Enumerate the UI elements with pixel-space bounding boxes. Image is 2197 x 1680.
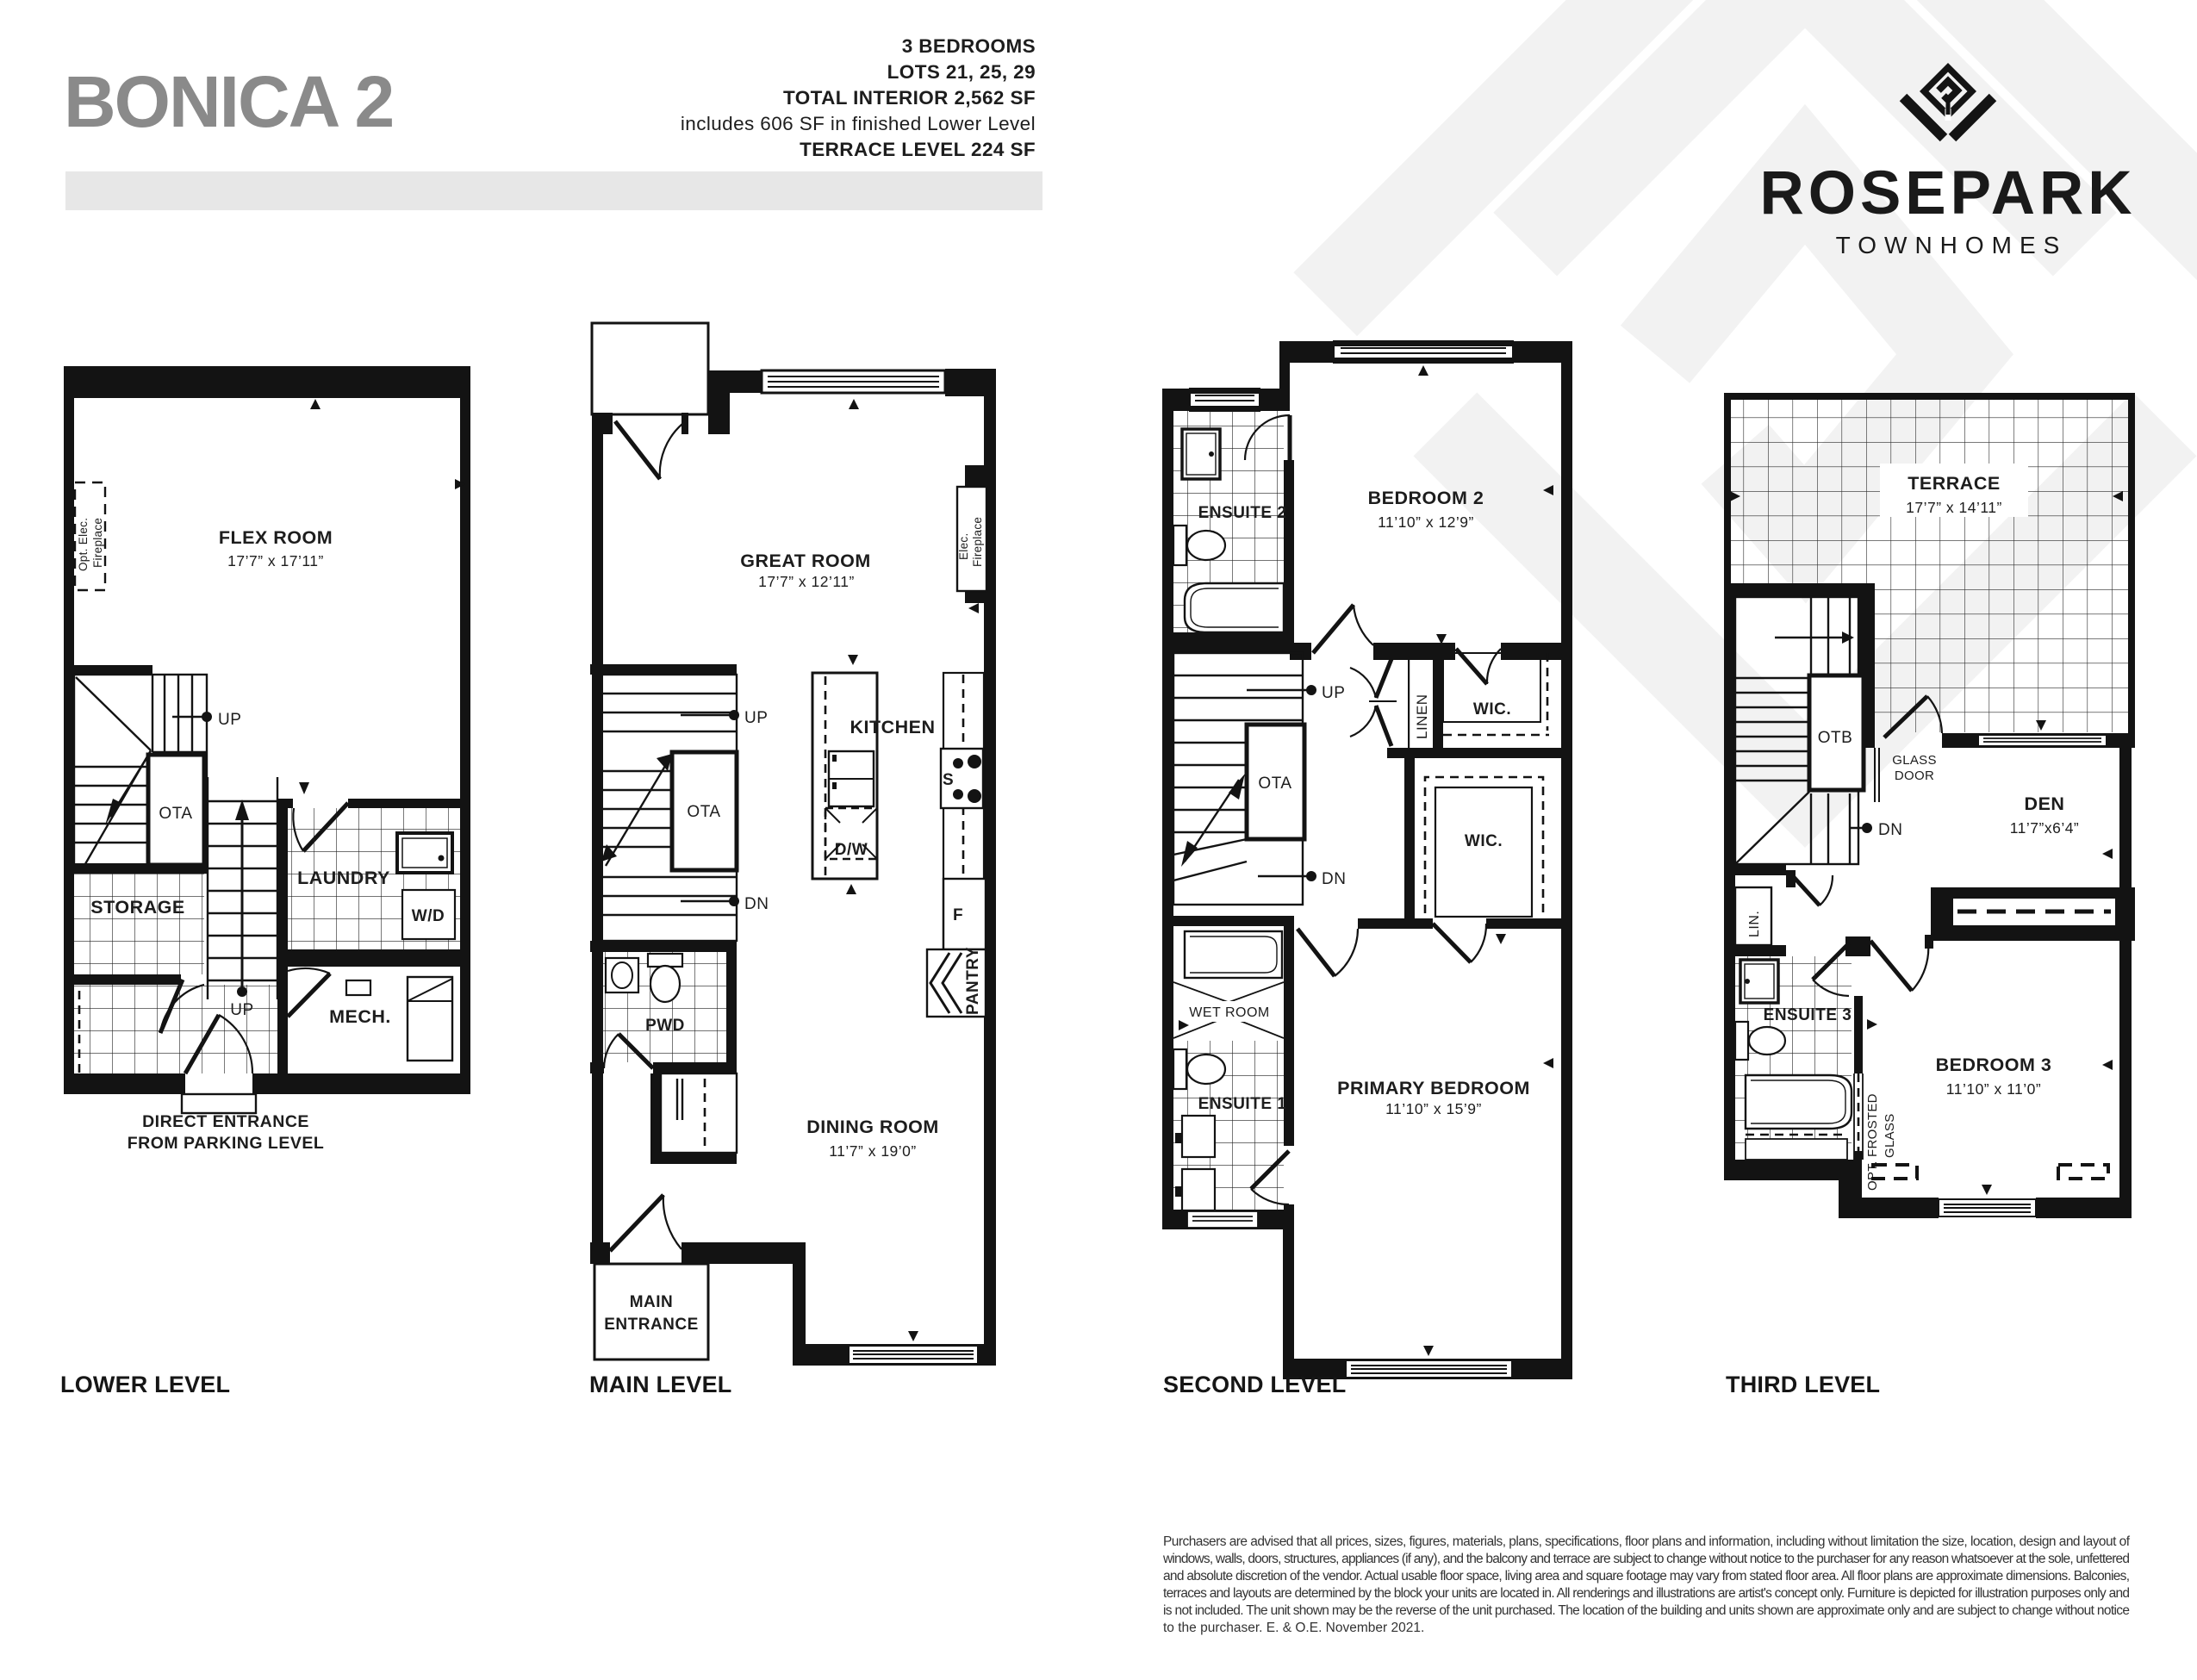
svg-text:ENSUITE 1: ENSUITE 1: [1198, 1095, 1287, 1113]
svg-text:SECOND LEVEL: SECOND LEVEL: [1163, 1372, 1346, 1397]
svg-text:17’7” x 14’11”: 17’7” x 14’11”: [1906, 499, 2002, 516]
svg-text:THIRD LEVEL: THIRD LEVEL: [1726, 1372, 1880, 1397]
svg-text:D/W: D/W: [835, 841, 868, 859]
svg-text:ROSEPARK: ROSEPARK: [1759, 159, 2136, 227]
svg-text:KITCHEN: KITCHEN: [850, 717, 935, 737]
svg-text:TERRACE LEVEL 224 SF: TERRACE LEVEL 224 SF: [800, 139, 1036, 160]
svg-text:Elec.: Elec.: [957, 532, 970, 560]
svg-text:MAIN: MAIN: [630, 1293, 674, 1311]
svg-text:OTA: OTA: [159, 805, 192, 823]
svg-text:11’10” x 11’0”: 11’10” x 11’0”: [1946, 1080, 2041, 1098]
svg-text:DN: DN: [1878, 821, 1902, 839]
svg-text:terraces and layouts are deter: terraces and layouts are determined by t…: [1163, 1586, 2130, 1601]
svg-text:GLASS: GLASS: [1883, 1113, 1897, 1158]
svg-text:WIC.: WIC.: [1465, 832, 1503, 850]
svg-text:windows, walls, doors, structu: windows, walls, doors, structures, appli…: [1162, 1552, 2130, 1566]
svg-text:LINEN: LINEN: [1414, 694, 1430, 739]
svg-text:BONICA 2: BONICA 2: [64, 61, 393, 142]
svg-text:11’10” x 15’9”: 11’10” x 15’9”: [1385, 1100, 1482, 1117]
svg-text:PRIMARY BEDROOM: PRIMARY BEDROOM: [1337, 1078, 1530, 1098]
svg-text:17’7” x 12’11”: 17’7” x 12’11”: [758, 573, 855, 590]
svg-text:W/D: W/D: [412, 907, 445, 925]
svg-text:TERRACE: TERRACE: [1908, 473, 2000, 494]
svg-text:BEDROOM 3: BEDROOM 3: [1936, 1055, 2052, 1075]
svg-text:DIRECT ENTRANCE: DIRECT ENTRANCE: [142, 1112, 309, 1131]
svg-text:OTB: OTB: [1818, 729, 1853, 747]
svg-text:11’7” x 19’0”: 11’7” x 19’0”: [829, 1142, 917, 1160]
svg-text:is not included. The unit show: is not included. The unit shown may be t…: [1163, 1603, 2130, 1618]
svg-text:OPT. FROSTED: OPT. FROSTED: [1865, 1093, 1880, 1191]
svg-text:FROM PARKING LEVEL: FROM PARKING LEVEL: [128, 1134, 325, 1153]
svg-text:Fireplace: Fireplace: [971, 517, 984, 567]
svg-text:TOWNHOMES: TOWNHOMES: [1836, 232, 2068, 258]
svg-text:ENSUITE 2: ENSUITE 2: [1198, 504, 1287, 522]
svg-text:GLASS: GLASS: [1892, 753, 1937, 768]
svg-text:PANTRY: PANTRY: [964, 947, 982, 1015]
svg-text:TOTAL INTERIOR 2,562 SF: TOTAL INTERIOR 2,562 SF: [783, 87, 1036, 109]
svg-text:OTA: OTA: [687, 803, 720, 821]
svg-text:LOWER LEVEL: LOWER LEVEL: [60, 1372, 230, 1397]
svg-text:MAIN LEVEL: MAIN LEVEL: [589, 1372, 732, 1397]
svg-text:PWD: PWD: [645, 1017, 685, 1035]
svg-text:Opt. Elec.: Opt. Elec.: [77, 518, 90, 571]
svg-text:LOTS 21, 25, 29: LOTS 21, 25, 29: [887, 61, 1036, 83]
svg-text:17’7” x 17’11”: 17’7” x 17’11”: [227, 552, 324, 569]
svg-text:includes 606 SF in finished Lo: includes 606 SF in finished Lower Level: [681, 113, 1036, 134]
svg-text:LIN.: LIN.: [1747, 911, 1762, 937]
svg-text:UP: UP: [230, 1001, 253, 1019]
svg-text:11’7”x6’4”: 11’7”x6’4”: [2010, 819, 2080, 837]
svg-text:S: S: [943, 771, 954, 789]
svg-text:STORAGE: STORAGE: [90, 897, 184, 918]
svg-text:Fireplace: Fireplace: [91, 518, 104, 568]
svg-text:DINING ROOM: DINING ROOM: [806, 1117, 939, 1137]
svg-text:WET ROOM: WET ROOM: [1189, 1005, 1269, 1020]
svg-text:DN: DN: [744, 895, 769, 913]
svg-text:DOOR: DOOR: [1895, 768, 1934, 783]
svg-text:LAUNDRY: LAUNDRY: [297, 868, 390, 888]
svg-text:to the purchaser. E. & O.E. No: to the purchaser. E. & O.E. November 202…: [1163, 1621, 1424, 1635]
svg-text:WIC.: WIC.: [1473, 700, 1511, 719]
svg-text:F: F: [953, 906, 963, 924]
svg-text:11’10” x 12’9”: 11’10” x 12’9”: [1378, 513, 1474, 531]
svg-text:GREAT ROOM: GREAT ROOM: [740, 551, 871, 571]
svg-text:FLEX ROOM: FLEX ROOM: [219, 527, 333, 548]
svg-text:Purchasers are advised that al: Purchasers are advised that all prices, …: [1163, 1534, 2131, 1549]
svg-text:UP: UP: [218, 711, 241, 729]
svg-text:UP: UP: [744, 709, 768, 727]
svg-text:UP: UP: [1322, 684, 1345, 702]
svg-text:BEDROOM 2: BEDROOM 2: [1368, 488, 1484, 508]
svg-text:DEN: DEN: [2025, 793, 2065, 814]
svg-text:OTA: OTA: [1258, 775, 1291, 793]
svg-text:3 BEDROOMS: 3 BEDROOMS: [902, 35, 1036, 57]
svg-text:and absolute discretion of the: and absolute discretion of the vendor. A…: [1163, 1569, 2130, 1584]
svg-text:ENSUITE 3: ENSUITE 3: [1764, 1006, 1852, 1024]
svg-text:MECH.: MECH.: [329, 1006, 391, 1027]
svg-text:DN: DN: [1322, 870, 1346, 888]
svg-text:ENTRANCE: ENTRANCE: [604, 1316, 699, 1334]
